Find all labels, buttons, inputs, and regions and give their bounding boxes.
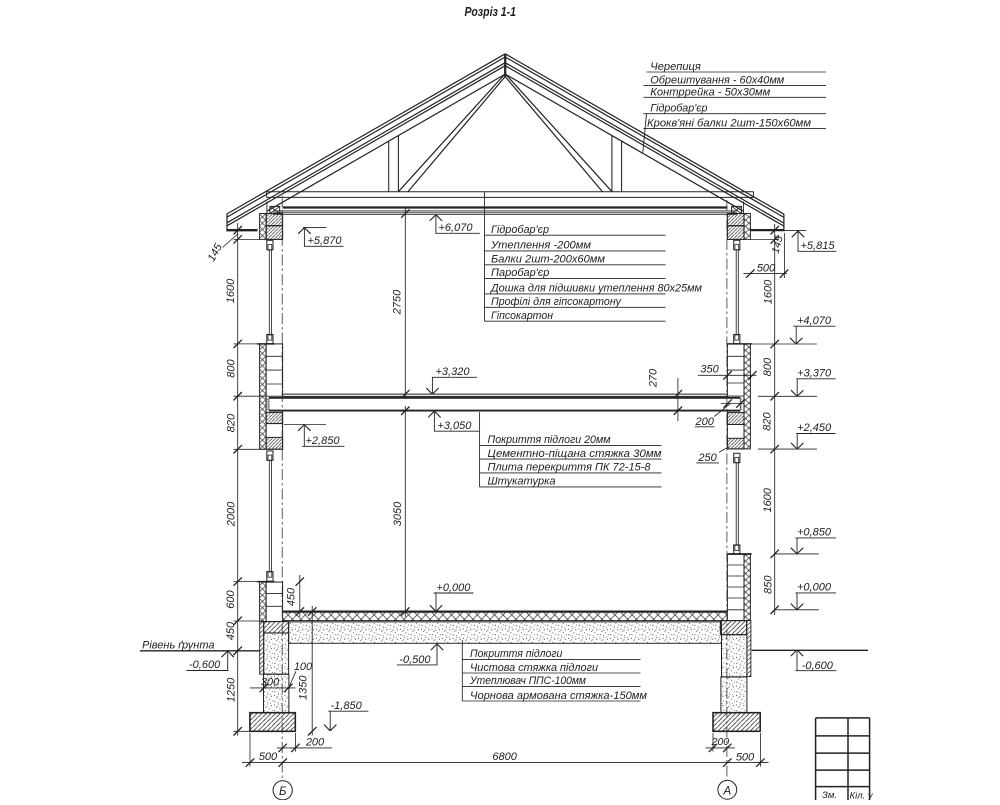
svg-text:2000: 2000	[226, 501, 238, 527]
svg-text:Утеплення -200мм: Утеплення -200мм	[490, 240, 591, 252]
svg-text:1350: 1350	[298, 675, 310, 700]
svg-text:Покриття підлоги 20мм: Покриття підлоги 20мм	[488, 434, 611, 446]
svg-text:-0,600: -0,600	[189, 659, 221, 671]
svg-text:Паробар'єр: Паробар'єр	[491, 267, 549, 279]
svg-text:500: 500	[736, 752, 755, 764]
svg-text:Чистова стяжка підлоги: Чистова стяжка підлоги	[470, 662, 598, 674]
svg-text:145: 145	[206, 241, 226, 264]
svg-text:Гідробар'єр: Гідробар'єр	[650, 103, 707, 115]
svg-text:Плита перекриття ПК 72-15-8: Плита перекриття ПК 72-15-8	[488, 462, 652, 474]
svg-text:-1,850: -1,850	[331, 700, 363, 712]
svg-text:2750: 2750	[391, 289, 403, 315]
svg-text:Кіл. у: Кіл. у	[850, 790, 874, 800]
svg-text:300: 300	[261, 676, 280, 688]
svg-text:200: 200	[695, 416, 715, 428]
svg-text:1600: 1600	[762, 487, 774, 512]
svg-text:1250: 1250	[226, 677, 238, 702]
svg-text:+2,850: +2,850	[306, 435, 341, 447]
svg-text:Чорнова армована стяжка-150мм: Чорнова армована стяжка-150мм	[470, 690, 647, 702]
svg-text:270: 270	[647, 368, 659, 388]
svg-text:850: 850	[762, 575, 774, 594]
svg-text:500: 500	[757, 262, 776, 274]
svg-text:Обрештування - 60х40мм: Обрештування - 60х40мм	[650, 74, 784, 86]
svg-text:А: А	[722, 786, 731, 798]
svg-text:Б: Б	[279, 786, 287, 798]
svg-text:6800: 6800	[492, 751, 517, 763]
svg-text:Контррейка - 50х30мм: Контррейка - 50х30мм	[650, 86, 770, 98]
svg-text:3050: 3050	[392, 501, 404, 526]
svg-text:Рівень ґрунта: Рівень ґрунта	[142, 640, 215, 652]
svg-text:+5,815: +5,815	[801, 240, 836, 252]
svg-text:Покриття підлоги: Покриття підлоги	[470, 648, 562, 660]
svg-text:+0,850: +0,850	[797, 527, 832, 539]
svg-text:+0,000: +0,000	[797, 582, 832, 594]
svg-text:200: 200	[305, 736, 325, 748]
svg-text:Гідробар'єр: Гідробар'єр	[491, 224, 549, 236]
svg-text:Крокв'яні балки 2шт-150х60мм: Крокв'яні балки 2шт-150х60мм	[647, 117, 811, 129]
svg-text:Штукатурка: Штукатурка	[488, 476, 556, 488]
svg-text:Гіпсокартон: Гіпсокартон	[491, 310, 553, 322]
svg-text:450: 450	[286, 587, 298, 606]
svg-text:Профілі для гіпсокартону: Профілі для гіпсокартону	[491, 296, 622, 308]
svg-text:+5,870: +5,870	[308, 235, 343, 247]
svg-text:Цементно-піщана стяжка 30мм: Цементно-піщана стяжка 30мм	[488, 448, 662, 460]
svg-text:+3,050: +3,050	[437, 420, 472, 432]
svg-text:820: 820	[762, 411, 774, 430]
svg-text:+3,320: +3,320	[436, 366, 471, 378]
svg-text:800: 800	[762, 357, 774, 376]
svg-text:+6,070: +6,070	[439, 222, 474, 234]
svg-text:+3,370: +3,370	[797, 368, 832, 380]
svg-text:Балки 2шт-200х60мм: Балки 2шт-200х60мм	[491, 254, 605, 266]
svg-text:Зм.: Зм.	[822, 790, 837, 800]
svg-text:820: 820	[226, 413, 238, 432]
svg-text:500: 500	[259, 751, 278, 763]
svg-text:100: 100	[294, 661, 313, 673]
svg-text:1600: 1600	[225, 278, 237, 303]
svg-text:Утеплювач ППС-100мм: Утеплювач ППС-100мм	[469, 675, 586, 687]
svg-text:1600: 1600	[762, 279, 774, 304]
svg-text:350: 350	[700, 364, 719, 376]
svg-text:250: 250	[697, 452, 717, 464]
svg-text:800: 800	[226, 358, 238, 377]
svg-text:+4,070: +4,070	[797, 315, 832, 327]
svg-text:Черепиця: Черепиця	[650, 61, 701, 73]
svg-text:-0,500: -0,500	[399, 654, 431, 666]
svg-text:+2,450: +2,450	[797, 422, 832, 434]
svg-text:+0,000: +0,000	[436, 582, 471, 594]
svg-text:Дошка для підшивки утеплення 8: Дошка для підшивки утеплення 80х25мм	[489, 283, 702, 295]
svg-text:-0,600: -0,600	[802, 660, 834, 672]
svg-text:145: 145	[770, 235, 786, 255]
svg-text:Розріз 1-1: Розріз 1-1	[465, 5, 517, 19]
svg-text:450: 450	[225, 621, 237, 640]
svg-text:600: 600	[225, 589, 237, 608]
svg-text:200: 200	[711, 736, 730, 748]
